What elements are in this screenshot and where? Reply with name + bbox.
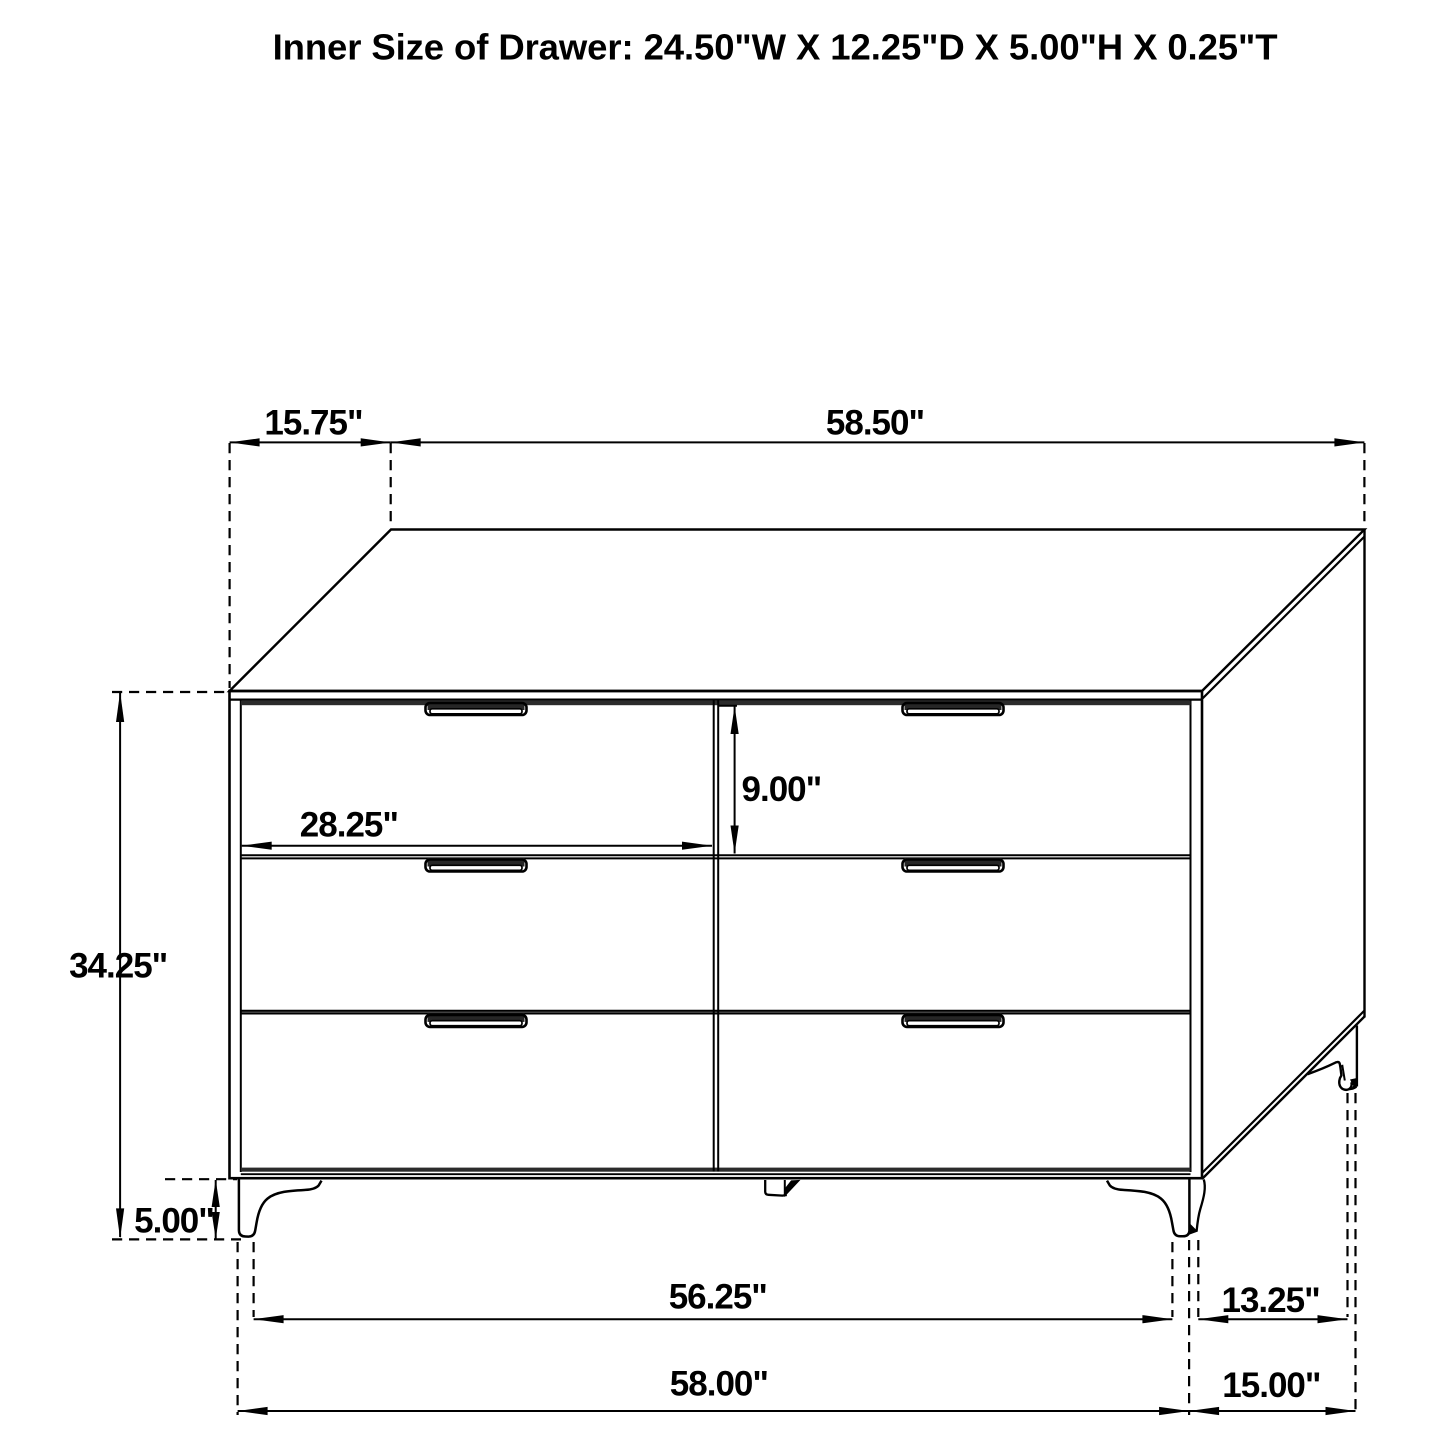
svg-text:56.25": 56.25" [669, 1278, 767, 1317]
svg-text:Inner Size of Drawer: 24.50"W: Inner Size of Drawer: 24.50"W X 12.25"D … [273, 27, 1278, 68]
svg-text:34.25": 34.25" [69, 947, 167, 986]
svg-text:5.00": 5.00" [134, 1202, 214, 1241]
svg-text:58.00": 58.00" [670, 1365, 768, 1404]
svg-text:13.25": 13.25" [1222, 1281, 1320, 1320]
svg-text:15.00": 15.00" [1222, 1366, 1320, 1405]
svg-text:15.75": 15.75" [264, 404, 362, 443]
svg-text:9.00": 9.00" [742, 770, 822, 809]
svg-text:28.25": 28.25" [300, 806, 398, 845]
svg-text:58.50": 58.50" [826, 404, 924, 443]
